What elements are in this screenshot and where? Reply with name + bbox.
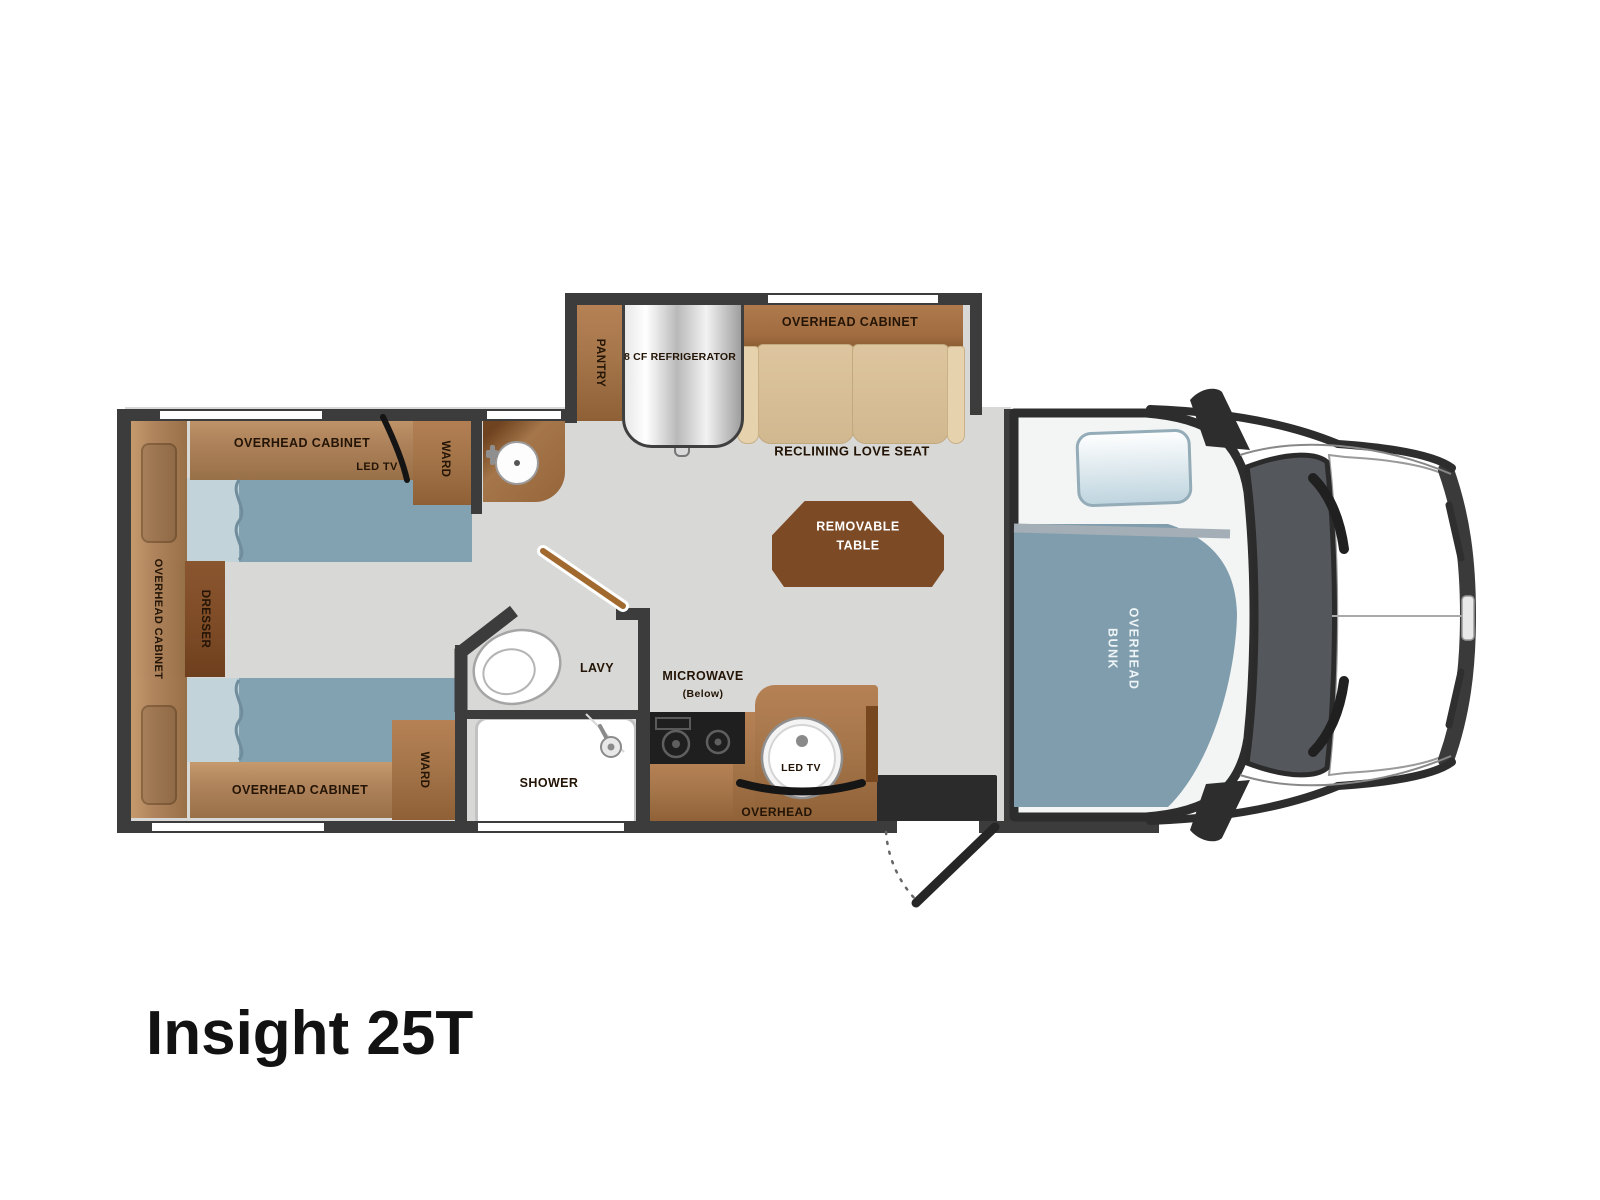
wall-shower bbox=[636, 712, 650, 833]
label-removable-table: REMOVABLE TABLE bbox=[816, 518, 899, 557]
counter-end-panel bbox=[866, 706, 878, 782]
label-pantry: PANTRY bbox=[594, 339, 606, 387]
headlight-trim bbox=[1449, 505, 1461, 558]
label-led-tv-kitchen: LED TV bbox=[781, 762, 821, 774]
headboard-cabinet-bottom bbox=[131, 677, 187, 818]
hood bbox=[1329, 455, 1467, 775]
pillow bbox=[1077, 430, 1191, 506]
kitchen-counter-left bbox=[648, 764, 733, 823]
wall bbox=[1004, 409, 1156, 421]
label-refrigerator: 8 CF REFRIGERATOR bbox=[624, 351, 736, 363]
cooktop bbox=[648, 712, 745, 764]
label-lavy: LAVY bbox=[580, 661, 614, 675]
wall-bath bbox=[638, 608, 650, 718]
label-ward-bottom: WARD bbox=[418, 752, 430, 789]
wall-slideout bbox=[565, 293, 577, 423]
label-overhead-kitchen: OVERHEAD bbox=[741, 805, 812, 819]
refrigerator bbox=[622, 302, 744, 448]
label-dresser: DRESSER bbox=[199, 590, 211, 648]
entry-door-swing bbox=[886, 832, 917, 901]
wall-slideout bbox=[970, 293, 982, 415]
loveseat-cushion bbox=[757, 344, 854, 444]
wiper-icon bbox=[1313, 681, 1344, 752]
bunk-mattress-edge bbox=[1014, 528, 1230, 534]
side-mirror-icon bbox=[1190, 780, 1250, 841]
bath-vanity bbox=[483, 412, 565, 502]
wall-bath bbox=[455, 645, 467, 833]
bumper-detail bbox=[1462, 596, 1474, 640]
label-overhead-cabinet-loveseat: OVERHEAD CABINET bbox=[782, 315, 918, 329]
shower-pan bbox=[475, 717, 637, 831]
label-led-tv-bedroom: LED TV bbox=[356, 461, 398, 473]
bed-sheet bbox=[185, 678, 239, 762]
window bbox=[160, 411, 322, 419]
label-overhead-cabinet-bed-bottom: OVERHEAD CABINET bbox=[232, 783, 368, 797]
entry-door-threshold bbox=[897, 821, 979, 833]
label-microwave-below: (Below) bbox=[683, 688, 724, 700]
label-bunk: BUNK bbox=[1101, 608, 1122, 691]
loveseat-cushion bbox=[852, 344, 949, 444]
label-overhead: OVERHEAD bbox=[1122, 608, 1143, 691]
wall-bath bbox=[616, 608, 650, 620]
cab-front bbox=[1150, 389, 1474, 842]
page-title: Insight 25T bbox=[146, 998, 473, 1069]
wall-bunk bbox=[1004, 409, 1016, 833]
side-mirror-icon bbox=[1190, 389, 1250, 450]
a-pillar-line bbox=[1240, 445, 1451, 474]
window bbox=[768, 295, 938, 303]
label-removable: REMOVABLE bbox=[816, 518, 899, 537]
label-table: TABLE bbox=[816, 537, 899, 556]
a-pillar-line bbox=[1240, 756, 1451, 785]
wall-bath bbox=[455, 710, 650, 719]
headboard-cabinet-top bbox=[131, 413, 187, 561]
wall-divider bbox=[471, 409, 482, 514]
wiper-icon bbox=[1313, 478, 1344, 549]
label-overhead-bunk: OVERHEAD BUNK bbox=[1101, 608, 1144, 691]
front-bumper bbox=[1446, 470, 1468, 760]
bed-sheet bbox=[185, 478, 239, 562]
label-shower: SHOWER bbox=[520, 776, 579, 790]
windshield bbox=[1247, 455, 1335, 775]
cabinet-panel bbox=[141, 443, 177, 543]
wall bbox=[117, 409, 131, 833]
loveseat-armrest bbox=[947, 346, 965, 444]
label-microwave: MICROWAVE bbox=[662, 669, 743, 683]
entry-door bbox=[916, 827, 995, 903]
label-overhead-cabinet-left: OVERHEAD CABINET bbox=[152, 559, 164, 680]
body-outline-top bbox=[1150, 409, 1452, 468]
window bbox=[478, 823, 624, 831]
headlight-trim bbox=[1449, 672, 1461, 725]
floorplan-insight-25t: OVERHEAD CABINET LED TV WARD OVERHEAD CA… bbox=[0, 0, 1600, 1200]
label-reclining-love-seat: RECLINING LOVE SEAT bbox=[774, 444, 929, 459]
window bbox=[152, 823, 324, 831]
cabinet-panel bbox=[141, 705, 177, 805]
label-overhead-cabinet-bed-top: OVERHEAD CABINET bbox=[234, 436, 370, 450]
window bbox=[487, 411, 561, 419]
entry-step bbox=[877, 775, 997, 823]
body-outline-bottom bbox=[1150, 762, 1452, 821]
label-ward-top: WARD bbox=[439, 441, 451, 478]
